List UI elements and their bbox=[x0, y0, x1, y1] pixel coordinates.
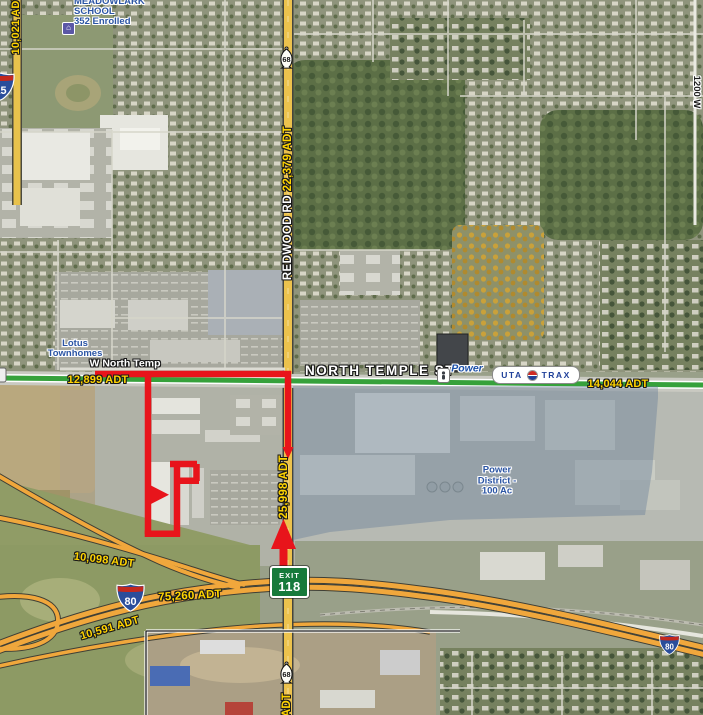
trax-text: TRAX bbox=[542, 370, 571, 380]
redwood-rd-name: REDWOOD RD bbox=[282, 195, 294, 280]
aerial-site-map: MEADOWLARK SCHOOL 352 Enrolled ⌂ Lotus T… bbox=[0, 0, 703, 715]
power-station-label: Power bbox=[451, 363, 483, 374]
adt-label-redwood-north: 22,379 ADT bbox=[282, 126, 294, 192]
adt-label-redwood-bottom: ADT bbox=[281, 693, 293, 715]
svg-text:68: 68 bbox=[282, 670, 290, 679]
i80-shield-small-icon: 80 bbox=[659, 634, 680, 660]
adt-label-redwood-south: 25,998 ADT bbox=[278, 455, 290, 519]
street-1200w-label: 1200 W bbox=[691, 76, 701, 109]
redwood-rd-label: REDWOOD RD 22,379 ADT bbox=[282, 126, 294, 280]
school-label-line3: 352 Enrolled bbox=[74, 17, 145, 27]
ut68-shield-top-icon: 68 bbox=[276, 45, 297, 76]
autumn-trees bbox=[452, 225, 544, 340]
adt-label-north-temple-west: 12,899 ADT bbox=[68, 375, 129, 387]
svg-text:80: 80 bbox=[124, 596, 136, 608]
school-label: MEADOWLARK SCHOOL 352 Enrolled bbox=[74, 0, 145, 27]
exit-118-sign: EXIT 118 bbox=[270, 566, 309, 598]
svg-text:68: 68 bbox=[282, 55, 290, 64]
w-north-temp-label: W North Temp bbox=[90, 358, 161, 369]
svg-text:15: 15 bbox=[0, 85, 7, 97]
ut68-shield-bottom-icon: 68 bbox=[276, 660, 297, 691]
school-icon: ⌂ bbox=[62, 22, 75, 35]
uta-trax-badge: UTA TRAX bbox=[492, 366, 580, 384]
blue-roof-building bbox=[150, 666, 190, 686]
i80-shield-icon: 80 bbox=[116, 583, 145, 617]
svg-text:80: 80 bbox=[665, 643, 674, 652]
i15-shield-icon: 15 bbox=[0, 72, 15, 106]
adt-label-left-road: 10,021 ADT bbox=[11, 0, 23, 54]
adt-label-north-temple-east: 14,044 ADT bbox=[588, 379, 649, 391]
transit-station-icon bbox=[437, 368, 450, 383]
red-roof-building bbox=[225, 702, 253, 715]
power-district-label: Power District - 100 Ac bbox=[478, 465, 517, 497]
north-temple-label: NORTH TEMPLE ST bbox=[305, 364, 455, 378]
uta-text: UTA bbox=[501, 370, 522, 380]
lotus-townhomes-label: Lotus Townhomes bbox=[48, 339, 103, 359]
uta-logo-icon bbox=[527, 370, 538, 381]
